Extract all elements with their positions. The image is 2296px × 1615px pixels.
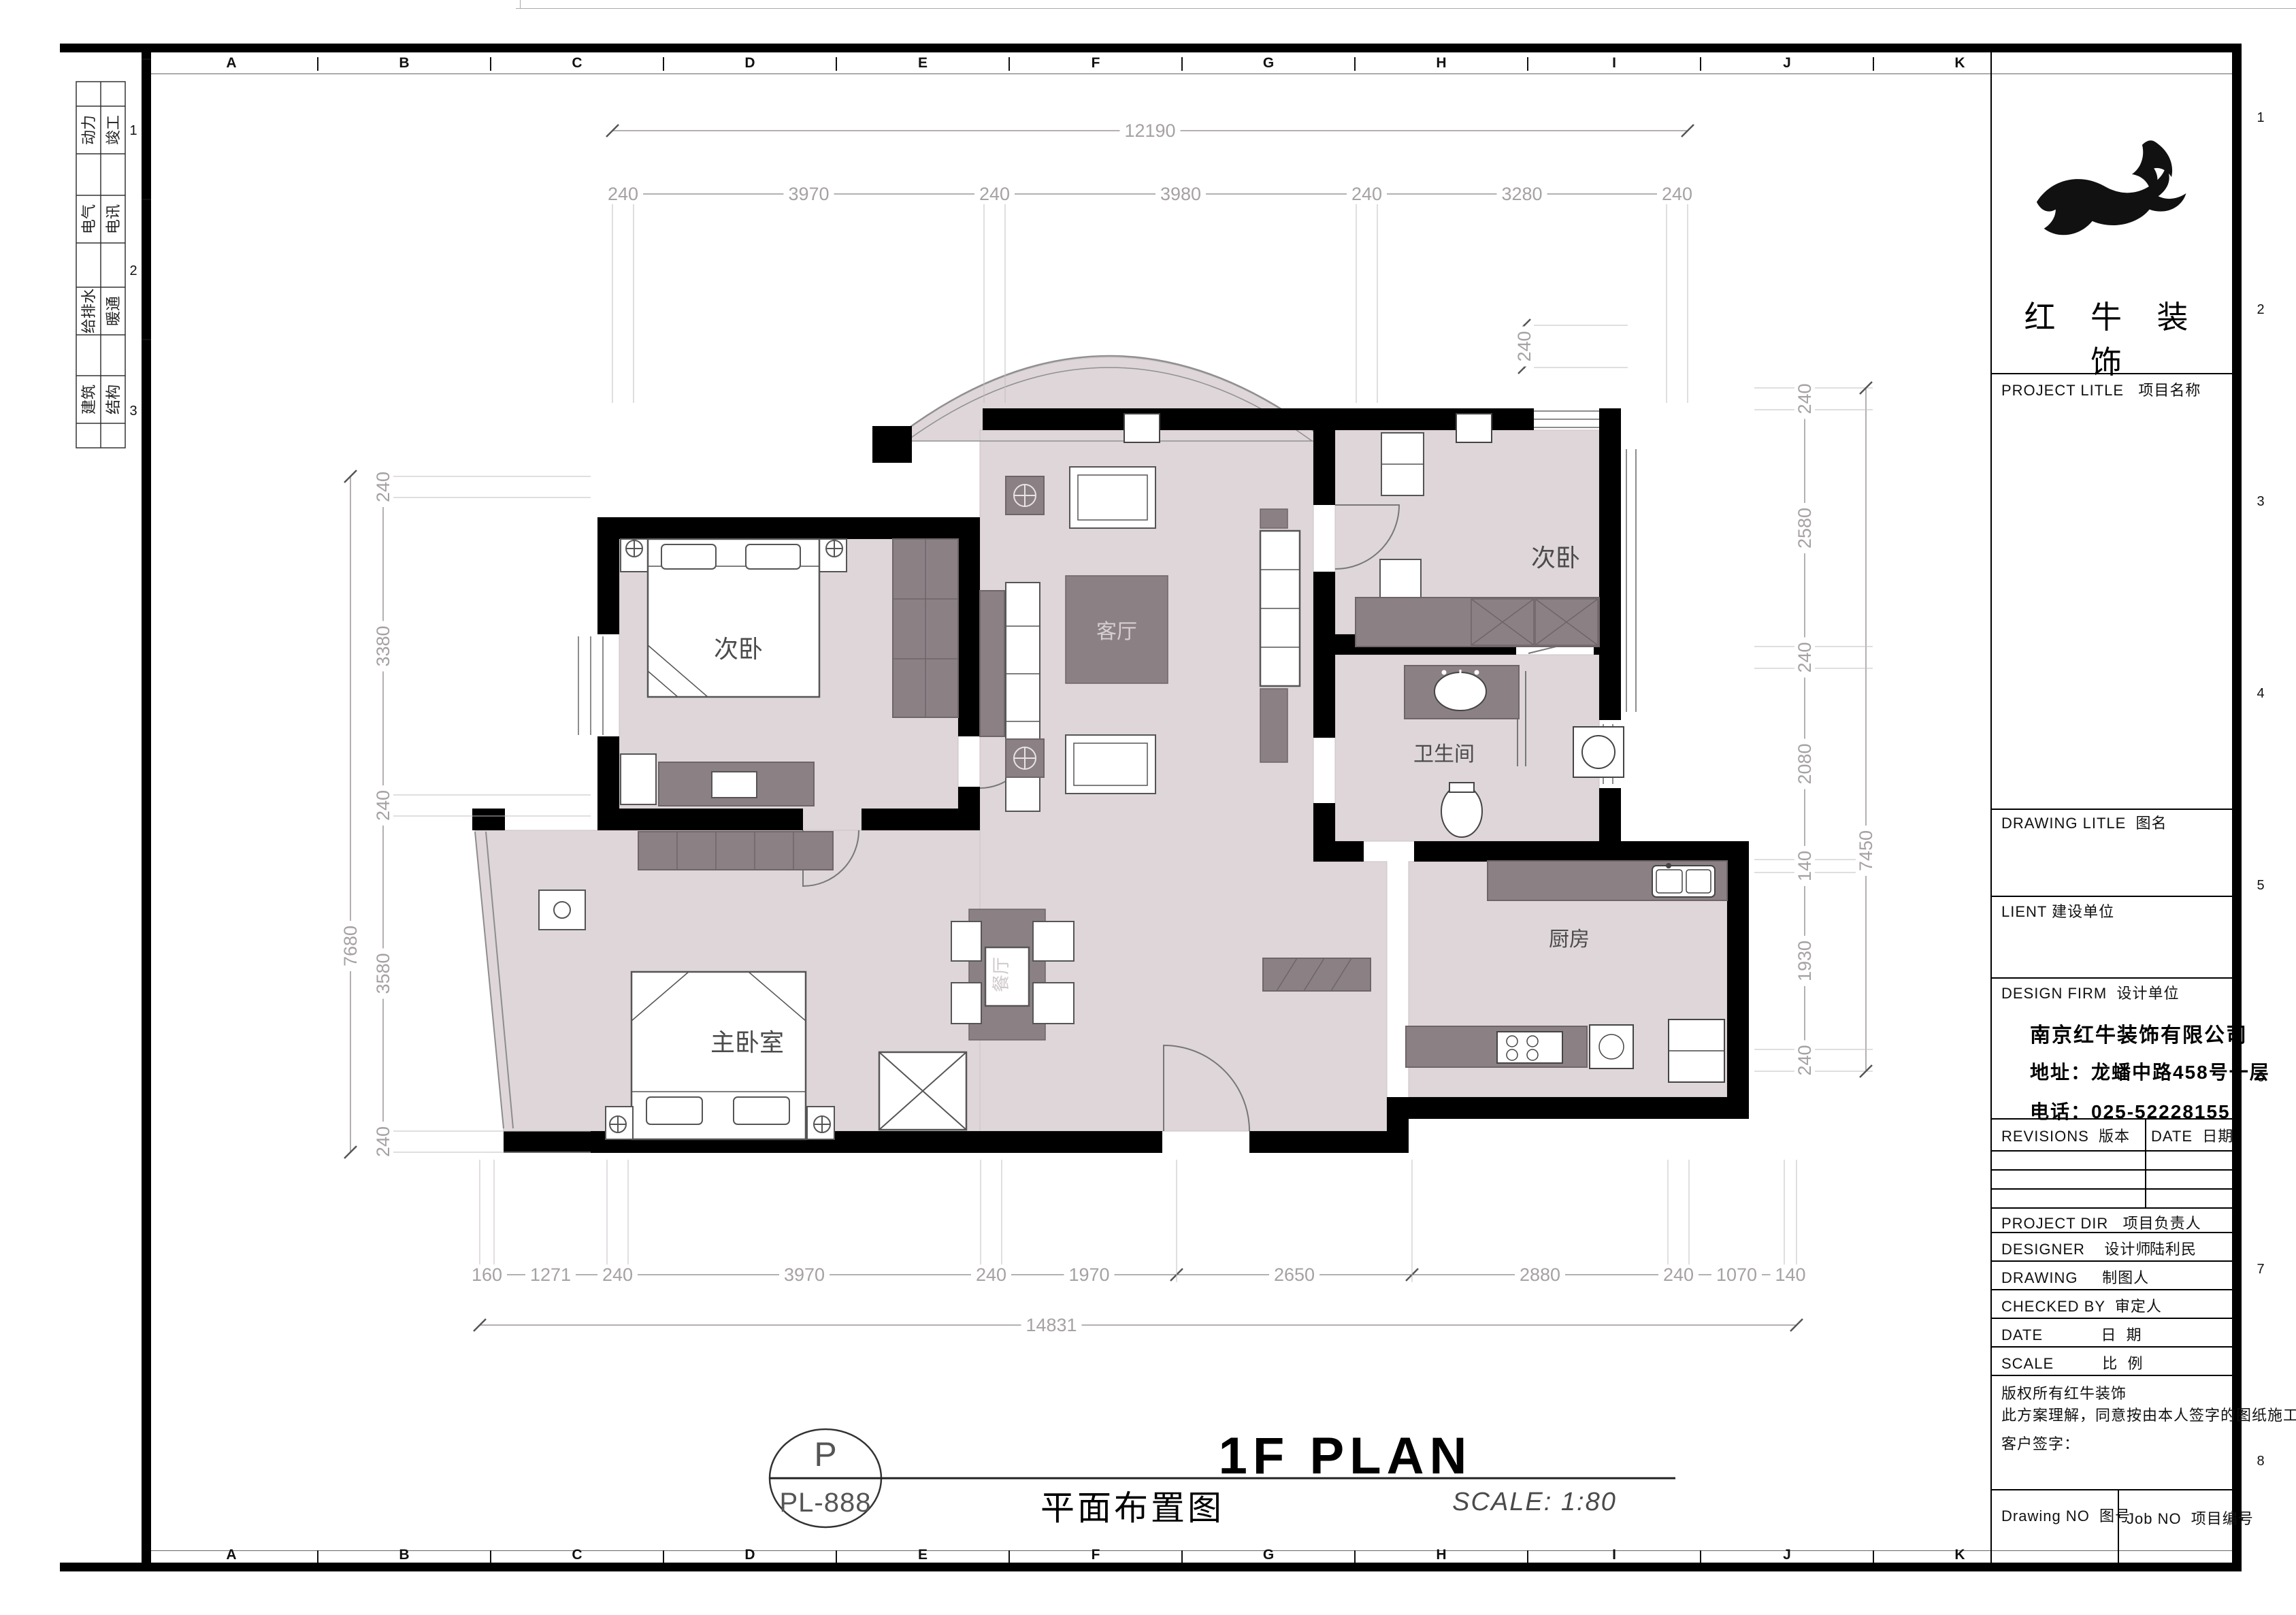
room-label-master: 主卧室	[710, 1029, 784, 1056]
title-block-divider	[1992, 1489, 2234, 1490]
title-block-divider	[1992, 1289, 2234, 1290]
grid-number-left: 3	[129, 404, 137, 419]
dim-label: 240	[979, 184, 1010, 204]
dim-chain-bottom: 1601271240397024019702650288024010701401…	[467, 1160, 1811, 1335]
title-block-divider	[1992, 1318, 2234, 1319]
drawing-by-label: DRAWING 制图人	[2001, 1266, 2149, 1288]
project-dir-label: PROJECT DIR 项目负责人	[2001, 1211, 2201, 1233]
grid-number-right: 5	[2257, 878, 2264, 893]
title-block: 红 牛 装 饰 PROJECT LITLE 项目名称 DRAWING LITLE…	[1990, 44, 2234, 1563]
room-label-bedroom-right: 次卧	[1531, 544, 1580, 572]
title-block-divider	[1992, 1169, 2234, 1171]
dim-label: 2080	[1794, 743, 1815, 784]
grid-number-right: 2	[2257, 302, 2264, 317]
grid-letter-bottom: I	[1612, 1547, 1616, 1563]
grid-letter-top: H	[1436, 55, 1446, 71]
floor-plan-canvas: 次卧 次卧 主卧室 卫生间 厨房 客厅 餐厅 24039702403980240…	[0, 0, 2296, 1615]
dim-label: 140	[1794, 851, 1815, 881]
grid-letter-top: I	[1612, 55, 1616, 71]
checked-by-label: CHECKED BY 审定人	[2001, 1294, 2162, 1316]
customer-sign-label: 客户签字：	[2001, 1432, 2080, 1454]
grid-number-left: 1	[129, 123, 137, 138]
company-logo-name: 红 牛 装 饰	[1992, 293, 2234, 382]
drawing-sheet: 次卧 次卧 主卧室 卫生间 厨房 客厅 餐厅 24039702403980240…	[0, 0, 2296, 1615]
dim-label: 240	[1662, 184, 1692, 204]
plan-scale: SCALE: 1:80	[1422, 1488, 1647, 1517]
dim-label: 3970	[784, 1265, 825, 1285]
grid-letter-bottom: K	[1954, 1547, 1965, 1563]
title-block-divider	[1992, 1346, 2234, 1348]
grid-letter-top: G	[1263, 55, 1274, 71]
dim-label: 240	[976, 1265, 1006, 1285]
discipline-tabs: 动力竣工电气电讯给排水暖通建筑结构	[76, 82, 125, 448]
dim-label: 240	[1663, 1265, 1694, 1285]
title-block-divider	[1992, 977, 2234, 979]
grid-letter-bottom: A	[226, 1547, 236, 1563]
grid-letter-bottom: F	[1092, 1547, 1100, 1563]
date-label: DATE 日 期	[2001, 1323, 2142, 1345]
dim-label: 240	[1514, 331, 1535, 361]
dim-label: 240	[373, 790, 393, 821]
dim-label: 140	[1775, 1265, 1805, 1285]
shoe-cabinet	[1263, 958, 1371, 991]
dim-label: 7680	[340, 926, 361, 966]
room-label-bedroom-left: 次卧	[714, 636, 763, 663]
title-block-divider	[1992, 809, 2234, 810]
dim-label: 240	[373, 1126, 393, 1157]
dim-label: 14831	[1026, 1315, 1077, 1335]
plan-title-cn: 平面布置图	[1006, 1481, 1259, 1530]
grid-letter-bottom: E	[918, 1547, 928, 1563]
grid-letter-bottom: J	[1783, 1547, 1791, 1563]
tv-cabinet	[980, 591, 1004, 736]
grid-letter-top: C	[572, 55, 582, 71]
tab-label-right: 竣工	[105, 115, 122, 145]
job-no-label: Job NO 项目编号	[2127, 1507, 2254, 1529]
oven	[1590, 1025, 1633, 1068]
dim-label: 2580	[1794, 508, 1815, 549]
grid-letter-bottom: G	[1263, 1547, 1274, 1563]
dim-label: 240	[602, 1265, 633, 1285]
toilet	[1441, 785, 1482, 837]
title-block-divider	[1992, 1150, 2234, 1152]
plan-title-en: 1F PLAN	[1138, 1426, 1553, 1486]
designer-label: DESIGNER 设计师	[2001, 1237, 2151, 1259]
dim-label: 7450	[1856, 830, 1876, 871]
tab-label-right: 结构	[105, 385, 122, 414]
company-name: 南京红牛装饰有限公司	[2030, 1018, 2248, 1048]
title-block-divider	[1992, 1232, 2234, 1233]
drawing-no-label: Drawing NO 图号	[2001, 1504, 2131, 1526]
dim-label: 2650	[1274, 1265, 1315, 1285]
dim-label: 3980	[1160, 184, 1201, 204]
revisions-date-label: DATE 日期	[2151, 1124, 2233, 1146]
dim-label: 2880	[1520, 1265, 1560, 1285]
dim-label: 240	[1794, 1045, 1815, 1075]
company-address: 地址：龙蟠中路458号一层	[2030, 1058, 2270, 1085]
designer-value: 陆利民	[2150, 1237, 2197, 1259]
grid-number-left: 2	[129, 263, 137, 278]
dim-label: 160	[472, 1265, 502, 1285]
tab-label-right: 暖通	[105, 296, 122, 326]
kitchen-sink	[1652, 866, 1715, 897]
revisions-col-divider	[2145, 1118, 2146, 1207]
grid-letter-bottom: B	[399, 1547, 409, 1563]
dim-label: 1070	[1716, 1265, 1757, 1285]
grid-letter-top: B	[399, 55, 409, 71]
grid-letter-top: K	[1954, 55, 1965, 71]
bottom-col-divider	[2118, 1489, 2119, 1563]
grid-number-right: 4	[2257, 686, 2264, 701]
title-block-divider	[1992, 1207, 2234, 1209]
grid-letter-top: D	[744, 55, 755, 71]
title-block-divider	[1992, 373, 2234, 374]
grid-letter-bottom: C	[572, 1547, 582, 1563]
project-title-label: PROJECT LITLE 项目名称	[2001, 378, 2201, 400]
title-block-divider	[1992, 1375, 2234, 1376]
grid-number-right: 3	[2257, 494, 2264, 509]
company-logo-bull-icon	[2019, 105, 2210, 282]
dim-label: 240	[1794, 642, 1815, 672]
copyright-line1: 版权所有红牛装饰	[2001, 1382, 2127, 1403]
dim-label: 12190	[1124, 120, 1175, 141]
title-block-divider	[1992, 896, 2234, 897]
company-phone: 电话：025-52228155	[2030, 1097, 2231, 1124]
dim-label: 1271	[530, 1265, 571, 1285]
room-label-bathroom: 卫生间	[1413, 743, 1475, 766]
drawing-title-label: DRAWING LITLE 图名	[2001, 811, 2167, 833]
revisions-label: REVISIONS 版本	[2001, 1124, 2130, 1146]
detail-code: PL-888	[764, 1488, 887, 1518]
grid-letter-top: F	[1092, 55, 1100, 71]
tab-label-left: 建筑	[80, 385, 97, 414]
tab-label-left: 电气	[80, 204, 97, 234]
grid-letter-bottom: H	[1436, 1547, 1446, 1563]
dim-label: 3280	[1501, 184, 1542, 204]
tab-label-left: 给排水	[80, 289, 97, 333]
detail-letter: P	[769, 1435, 882, 1474]
dim-label: 240	[1794, 383, 1815, 414]
design-firm-label: DESIGN FIRM 设计单位	[2001, 981, 2179, 1003]
grid-number-right: 8	[2257, 1454, 2264, 1469]
grid-letter-bottom: D	[744, 1547, 755, 1563]
grid-number-right: 7	[2257, 1262, 2264, 1277]
tab-label-right: 电讯	[105, 204, 122, 234]
dim-label: 240	[1351, 184, 1382, 204]
room-label-kitchen: 厨房	[1549, 928, 1590, 951]
dim-label: 3970	[788, 184, 829, 204]
scale-label: SCALE 比 例	[2001, 1352, 2144, 1373]
grid-letter-top: E	[918, 55, 928, 71]
dim-chain-right: 2402580240208014019302407450	[1754, 379, 1876, 1081]
title-block-divider	[1992, 1118, 2234, 1120]
master-cabinet	[638, 832, 833, 870]
dim-window-offset: 240	[1514, 319, 1628, 374]
title-block-divider	[1992, 1188, 2234, 1190]
client-label: LIENT 建设单位	[2001, 900, 2114, 921]
dim-label: 1930	[1794, 941, 1815, 981]
dim-label: 240	[608, 184, 638, 204]
title-block-divider	[1992, 1260, 2234, 1262]
copyright-line2: 此方案理解，同意按由本人签字的图纸施工；	[2001, 1403, 2296, 1425]
dim-label: 3580	[373, 953, 393, 994]
room-label-dining: 餐厅	[991, 957, 1011, 992]
grid-letter-top: J	[1783, 55, 1791, 71]
dim-label: 240	[373, 472, 393, 502]
dim-label: 3380	[373, 625, 393, 666]
tab-label-left: 动力	[80, 115, 97, 145]
dim-label: 1970	[1068, 1265, 1109, 1285]
room-label-living: 客厅	[1096, 621, 1137, 643]
wardrobe-right	[1356, 598, 1599, 647]
grid-number-right: 1	[2257, 110, 2264, 125]
washer	[1573, 727, 1624, 777]
grid-letter-top: A	[226, 55, 236, 71]
